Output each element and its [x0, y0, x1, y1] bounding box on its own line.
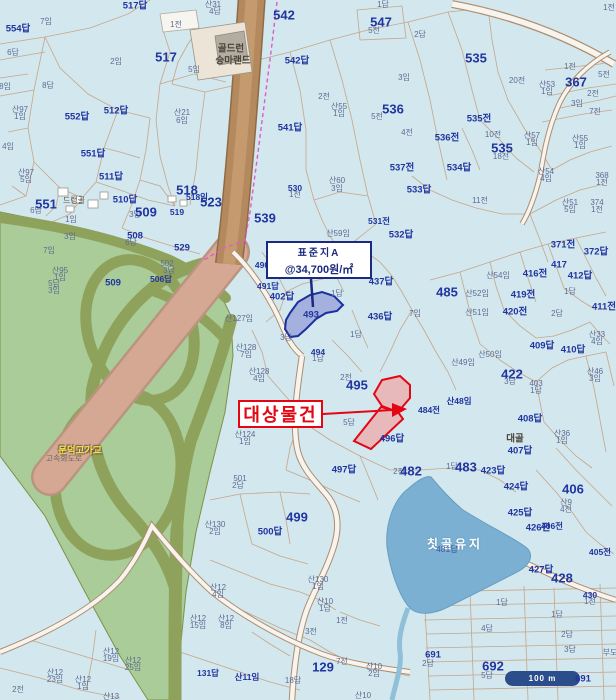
cadastral-map[interactable]: 517답산314답1전7임554답6답골드런승마랜드5172임5임542542답…	[0, 0, 616, 700]
callout-title: 표준지A	[298, 244, 341, 259]
callout-price: @34,700원/㎡	[285, 261, 354, 277]
subject-property-label: 대상물건	[238, 400, 323, 428]
standard-lot-callout: 표준지A @34,700원/㎡	[266, 241, 372, 279]
scale-bar: 100 m	[505, 671, 580, 686]
scale-bar-label: 100 m	[529, 674, 557, 683]
map-graphics	[0, 0, 616, 700]
